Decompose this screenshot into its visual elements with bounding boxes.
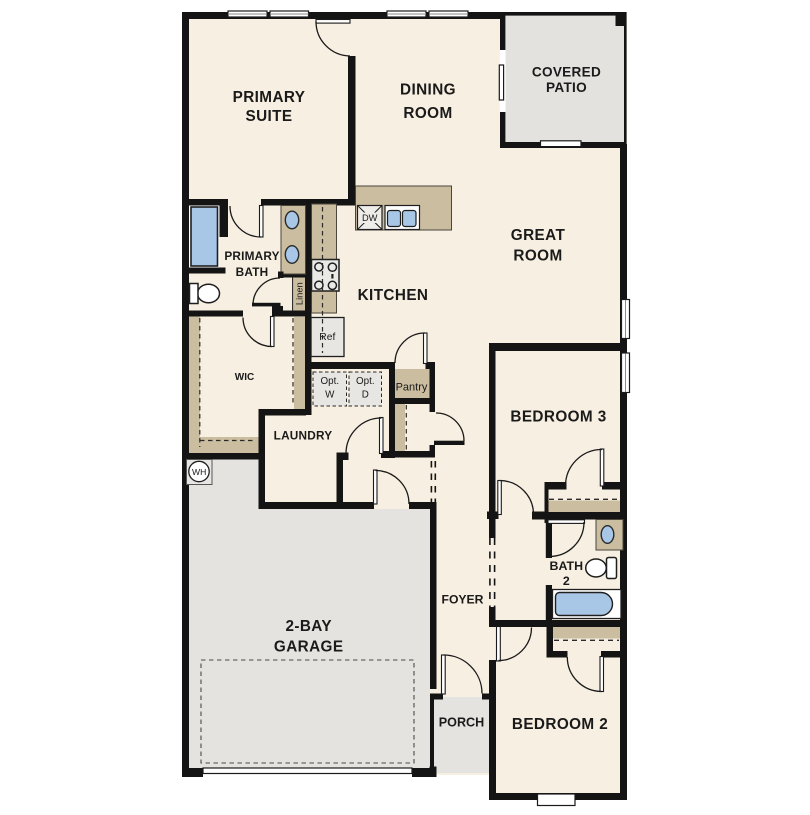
svg-text:GREAT: GREAT	[511, 227, 566, 244]
svg-text:BEDROOM 3: BEDROOM 3	[510, 409, 606, 426]
svg-text:Pantry: Pantry	[396, 382, 428, 394]
svg-text:LAUNDRY: LAUNDRY	[274, 429, 333, 443]
svg-text:PATIO: PATIO	[546, 80, 587, 95]
svg-text:D: D	[362, 390, 369, 401]
svg-text:COVERED: COVERED	[532, 65, 601, 80]
svg-text:BATH: BATH	[236, 265, 269, 279]
svg-text:WH: WH	[192, 467, 206, 477]
svg-text:FOYER: FOYER	[442, 593, 484, 607]
svg-text:Ref: Ref	[319, 332, 335, 343]
svg-text:Opt.: Opt.	[356, 376, 375, 387]
svg-text:PRIMARY: PRIMARY	[233, 89, 306, 106]
svg-text:PORCH: PORCH	[439, 715, 484, 729]
svg-text:DINING: DINING	[400, 82, 456, 99]
svg-text:W: W	[325, 390, 335, 401]
svg-text:BEDROOM 2: BEDROOM 2	[512, 716, 608, 733]
svg-text:DW: DW	[362, 213, 378, 223]
svg-text:2-BAY: 2-BAY	[285, 618, 332, 635]
svg-text:Linen: Linen	[295, 282, 305, 305]
svg-text:PRIMARY: PRIMARY	[224, 249, 279, 263]
svg-text:ROOM: ROOM	[403, 105, 452, 122]
svg-text:SUITE: SUITE	[245, 108, 292, 125]
svg-text:WIC: WIC	[235, 372, 254, 383]
svg-text:KITCHEN: KITCHEN	[358, 287, 429, 304]
svg-text:BATH: BATH	[550, 559, 584, 573]
svg-text:2: 2	[563, 574, 570, 588]
svg-text:GARAGE: GARAGE	[274, 639, 344, 656]
svg-text:ROOM: ROOM	[513, 247, 562, 264]
svg-text:Opt.: Opt.	[321, 376, 340, 387]
